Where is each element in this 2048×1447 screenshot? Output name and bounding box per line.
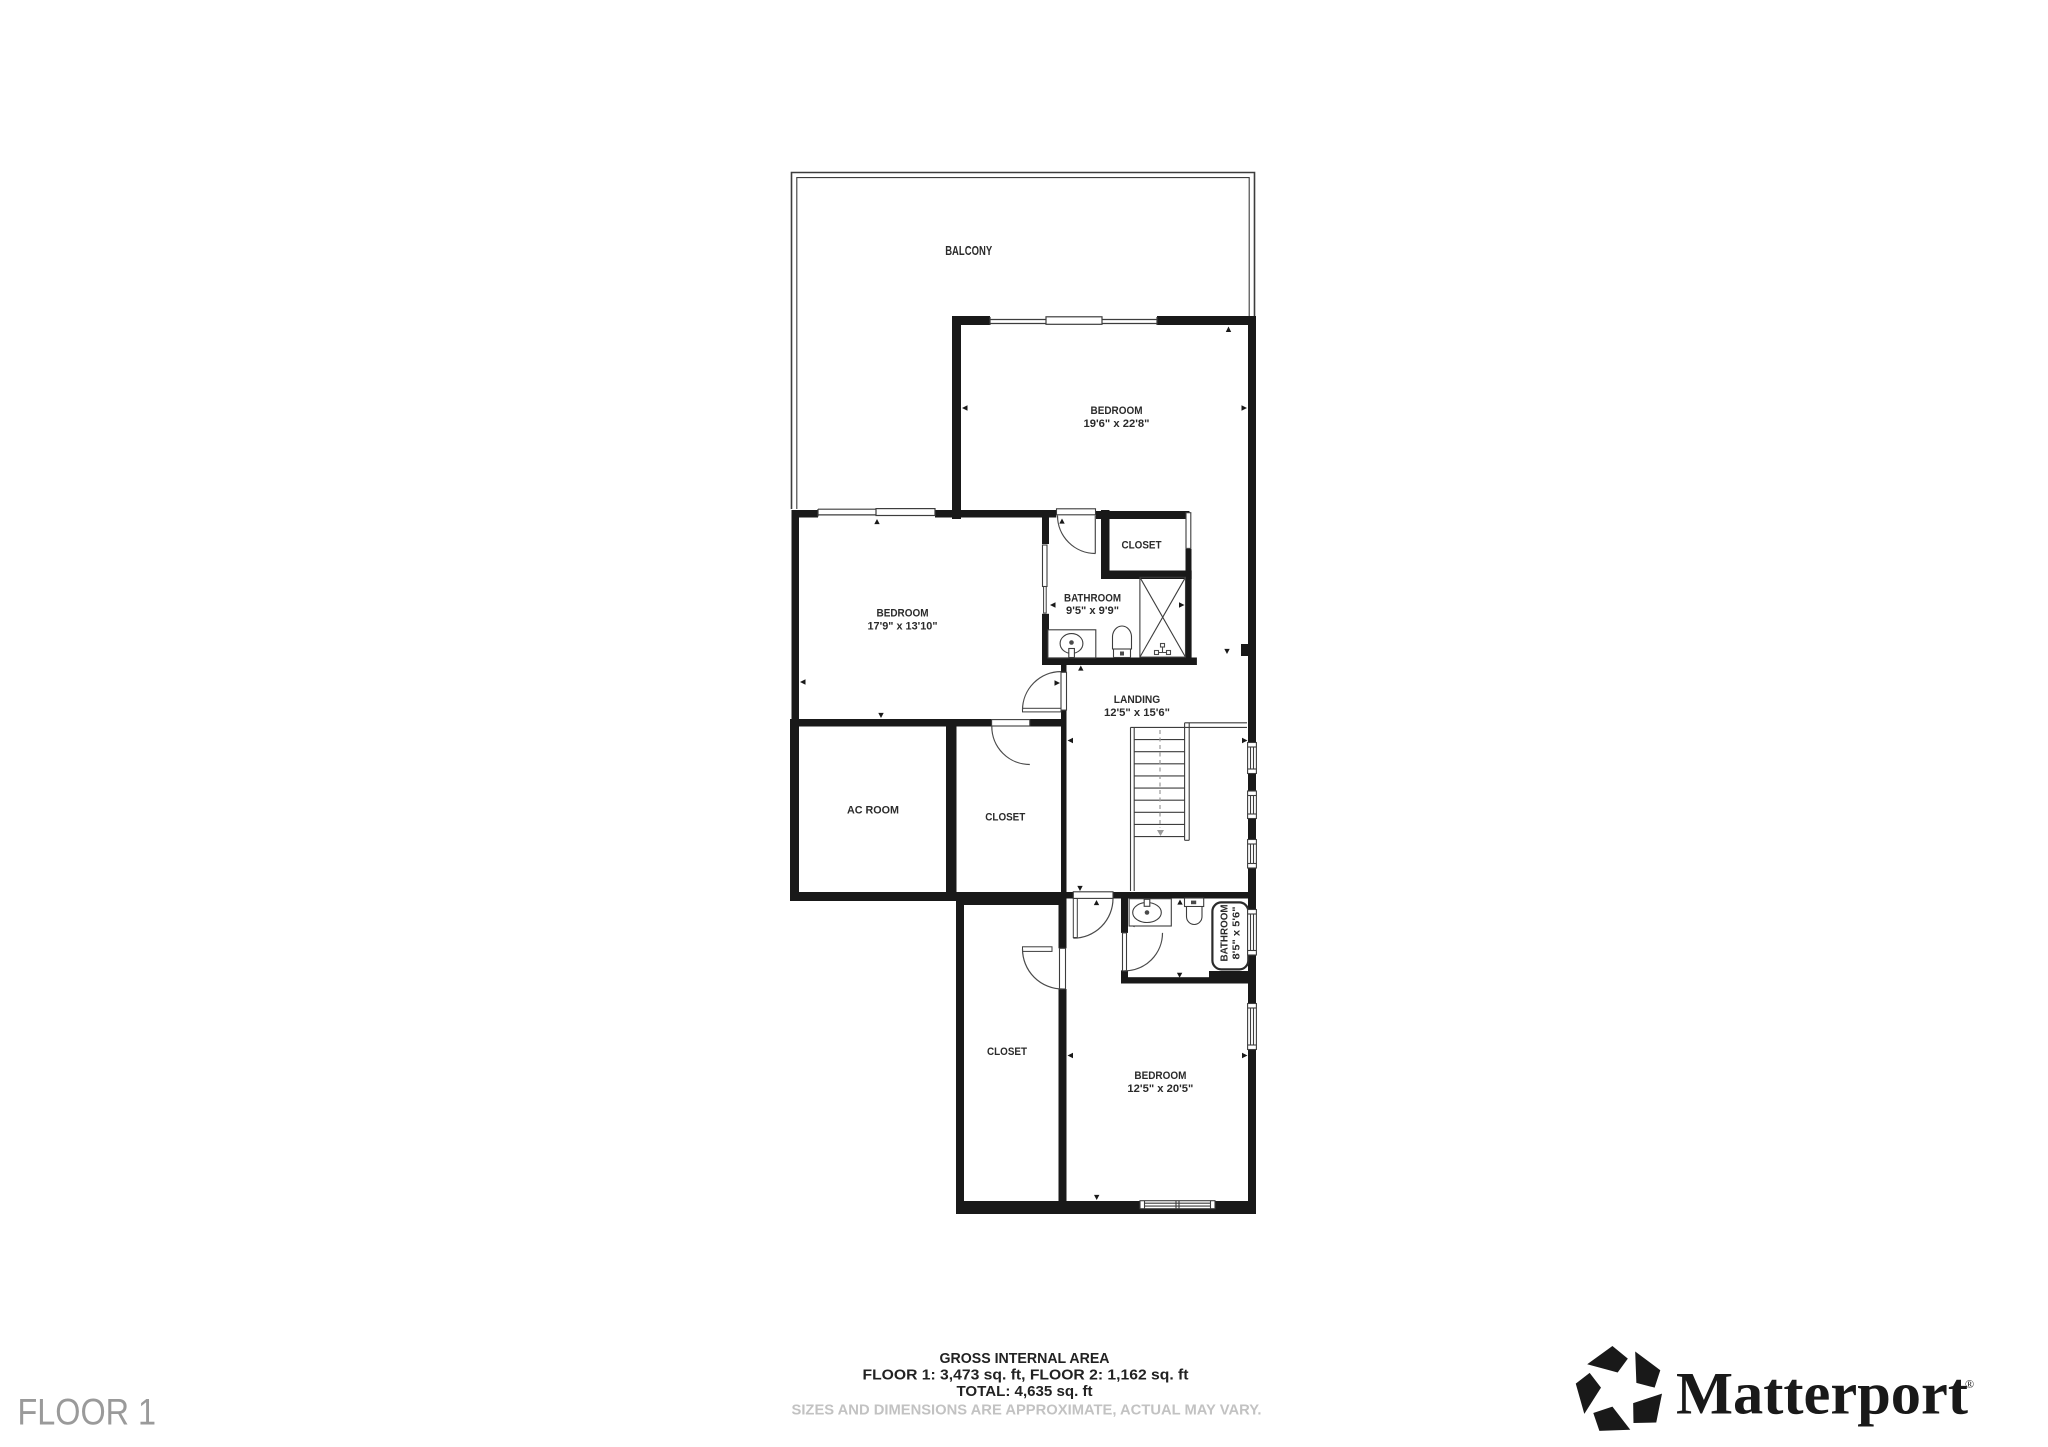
svg-text:TOTAL: 4,635 sq. ft: TOTAL: 4,635 sq. ft xyxy=(957,1383,1093,1400)
svg-text:SIZES AND DIMENSIONS ARE APPRO: SIZES AND DIMENSIONS ARE APPROXIMATE, AC… xyxy=(792,1402,1262,1419)
svg-text:Matterport: Matterport xyxy=(1676,1361,1968,1427)
svg-text:GROSS INTERNAL AREA: GROSS INTERNAL AREA xyxy=(940,1350,1110,1367)
svg-text:FLOOR 1: 3,473 sq. ft, FLOOR 2: FLOOR 1: 3,473 sq. ft, FLOOR 2: 1,162 sq… xyxy=(863,1367,1189,1384)
svg-text:BATHROOM: BATHROOM xyxy=(1064,592,1121,604)
svg-text:12'5" x 15'6": 12'5" x 15'6" xyxy=(1104,707,1170,719)
svg-text:FLOOR 1: FLOOR 1 xyxy=(18,1392,157,1433)
svg-text:CLOSET: CLOSET xyxy=(985,812,1025,824)
svg-text:9'5" x 9'9": 9'5" x 9'9" xyxy=(1066,605,1119,617)
svg-text:19'6" x 22'8": 19'6" x 22'8" xyxy=(1084,418,1150,430)
svg-text:8'5" x 5'6": 8'5" x 5'6" xyxy=(1231,906,1243,959)
svg-text:12'5" x 20'5": 12'5" x 20'5" xyxy=(1127,1083,1193,1095)
svg-text:BATHROOM: BATHROOM xyxy=(1219,904,1231,961)
svg-text:BEDROOM: BEDROOM xyxy=(1091,405,1143,417)
svg-text:17'9" x 13'10": 17'9" x 13'10" xyxy=(868,621,938,633)
svg-text:®: ® xyxy=(1965,1377,1974,1391)
svg-text:AC ROOM: AC ROOM xyxy=(847,805,899,817)
svg-text:BALCONY: BALCONY xyxy=(945,244,992,258)
svg-text:LANDING: LANDING xyxy=(1114,694,1161,706)
svg-text:BEDROOM: BEDROOM xyxy=(877,608,929,620)
svg-text:CLOSET: CLOSET xyxy=(987,1046,1027,1058)
svg-text:BEDROOM: BEDROOM xyxy=(1134,1070,1186,1082)
svg-text:CLOSET: CLOSET xyxy=(1122,540,1162,552)
